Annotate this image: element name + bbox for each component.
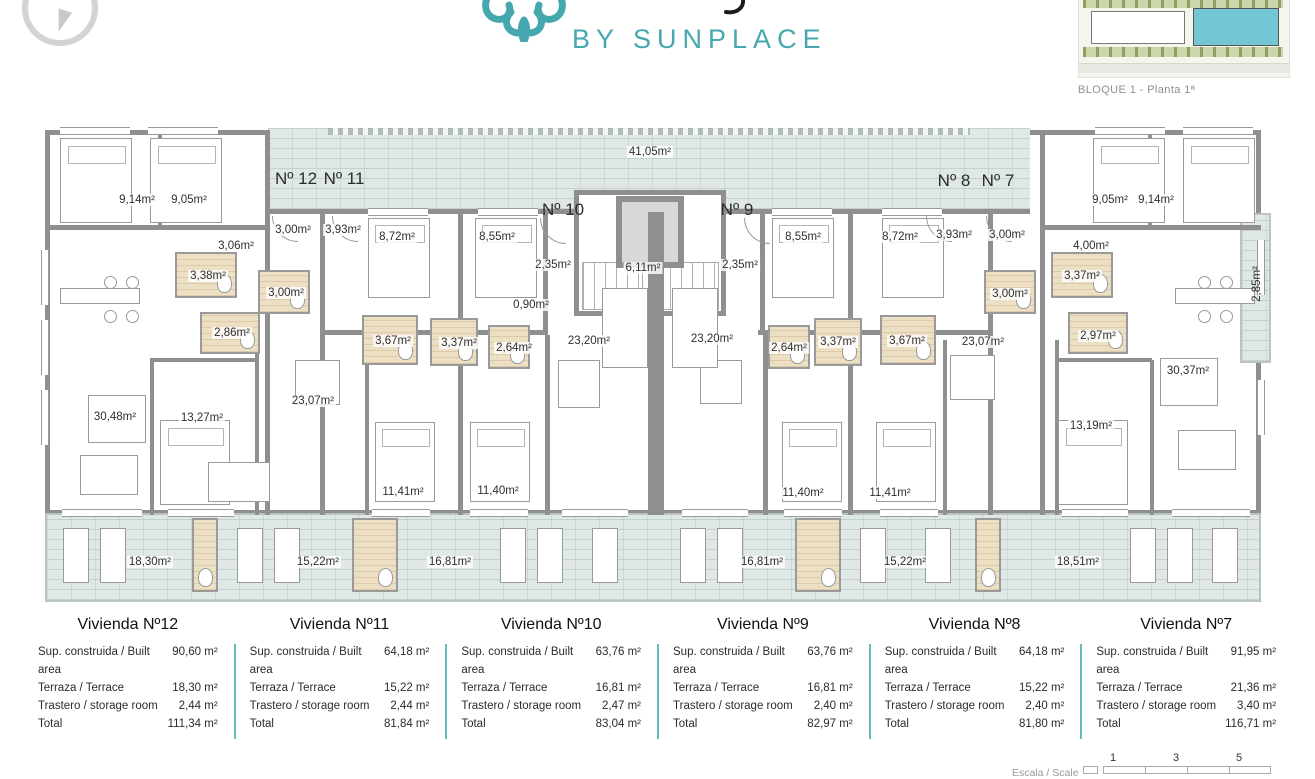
- room-area-label: 11,40m²: [475, 485, 520, 497]
- legend-row: Total81,84 m²: [250, 715, 430, 733]
- legend-row: Total82,97 m²: [673, 715, 853, 733]
- legend-row-label: Sup. construida / Built area: [461, 643, 595, 679]
- legend-row-label: Trastero / storage room: [1096, 697, 1216, 715]
- legend-row: Trastero / storage room2,47 m²: [461, 697, 641, 715]
- room-area-label: 9,14m²: [117, 194, 157, 206]
- room-area-label: 23,20m²: [566, 335, 612, 347]
- legend-row-value: 81,84 m²: [384, 715, 429, 733]
- room-area-label: 30,48m²: [92, 411, 138, 423]
- window: [1257, 380, 1265, 435]
- stool: [1220, 276, 1233, 289]
- legend-row-value: 3,40 m²: [1237, 697, 1276, 715]
- legend-row: Terraza / Terrace15,22 m²: [885, 679, 1065, 697]
- bed: [475, 218, 537, 298]
- window: [368, 208, 428, 216]
- room-area-label: 11,41m²: [867, 487, 912, 499]
- room-area-label: 15,22m²: [295, 556, 341, 568]
- interior-wall: [943, 340, 947, 515]
- sun-lounger: [1167, 528, 1193, 583]
- room-area-label: 2,64m²: [494, 342, 534, 354]
- interior-wall: [648, 212, 664, 515]
- stool: [104, 310, 117, 323]
- window: [1183, 127, 1253, 135]
- room-area-label: 16,81m²: [427, 556, 473, 568]
- room-area-label: 3,00m²: [987, 229, 1027, 241]
- legend-row-value: 15,22 m²: [384, 679, 429, 697]
- legend-row-label: Total: [38, 715, 62, 733]
- stool: [1198, 276, 1211, 289]
- legend-unit-title: Vivienda Nº10: [461, 616, 641, 634]
- storage-closet: [975, 518, 1001, 592]
- room-area-label: 3,00m²: [266, 287, 306, 299]
- storage-closet: [352, 518, 398, 592]
- room-area-label: 13,19m²: [1068, 420, 1114, 432]
- legend-row-label: Trastero / storage room: [673, 697, 793, 715]
- legend-row: Trastero / storage room3,40 m²: [1096, 697, 1276, 715]
- legend-column: Vivienda Nº8Sup. construida / Built area…: [869, 616, 1081, 733]
- interior-wall: [1055, 358, 1152, 362]
- interior-wall: [545, 335, 550, 515]
- legend-row-value: 15,22 m²: [1019, 679, 1064, 697]
- legend-column: Vivienda Nº10Sup. construida / Built are…: [445, 616, 657, 733]
- legend-row: Trastero / storage room2,40 m²: [885, 697, 1065, 715]
- furniture: [672, 288, 718, 368]
- interior-wall: [45, 225, 265, 230]
- furniture: [602, 288, 648, 368]
- room-area-label: 13,27m²: [179, 412, 225, 424]
- room-area-label: 2,35m²: [720, 259, 760, 271]
- furniture: [1178, 430, 1236, 470]
- legend-row-label: Sup. construida / Built area: [673, 643, 807, 679]
- unit-number-label: Nº 11: [324, 169, 365, 189]
- furniture: [80, 455, 138, 495]
- room-area-label: 23,07m²: [960, 336, 1006, 348]
- room-area-label: 2,97m²: [1078, 330, 1118, 342]
- room-area-label: 2,64m²: [769, 342, 809, 354]
- scale-label: Escala / Scale: [1012, 767, 1079, 779]
- stool: [104, 276, 117, 289]
- legend-row-label: Total: [461, 715, 485, 733]
- room-area-label: 3,38m²: [188, 270, 228, 282]
- room-area-label: 3,67m²: [887, 335, 927, 347]
- legend-unit-title: Vivienda Nº9: [673, 616, 853, 634]
- interior-wall: [1040, 130, 1045, 515]
- legend-row: Terraza / Terrace16,81 m²: [461, 679, 641, 697]
- window: [168, 509, 234, 517]
- window: [60, 127, 130, 135]
- legend-column: Vivienda Nº11Sup. construida / Built are…: [234, 616, 446, 733]
- legend-row-label: Trastero / storage room: [885, 697, 1005, 715]
- furniture: [1175, 288, 1255, 304]
- window: [562, 509, 628, 517]
- window: [784, 509, 842, 517]
- window: [470, 509, 528, 517]
- legend-row-label: Terraza / Terrace: [1096, 679, 1182, 697]
- bed: [1058, 420, 1128, 505]
- pergola-strip: [328, 128, 970, 135]
- unit-number-label: Nº 7: [982, 171, 1015, 191]
- room-area-label: 3,93m²: [323, 224, 363, 236]
- legend-row-label: Terraza / Terrace: [250, 679, 336, 697]
- room-area-label: 8,72m²: [377, 231, 417, 243]
- bed: [1093, 138, 1165, 223]
- room-area-label: 8,55m²: [477, 231, 517, 243]
- window: [880, 509, 938, 517]
- window: [41, 390, 49, 445]
- legend-row: Trastero / storage room2,44 m²: [38, 697, 218, 715]
- legend-row: Sup. construida / Built area90,60 m²: [38, 643, 218, 679]
- stool: [1220, 310, 1233, 323]
- room-area-label: 15,22m²: [882, 556, 928, 568]
- sun-lounger: [925, 528, 951, 583]
- room-area-label: 2,86m²: [212, 327, 252, 339]
- sun-lounger: [237, 528, 263, 583]
- room-area-label: 41,05m²: [627, 146, 673, 158]
- room-area-label: 9,05m²: [169, 194, 209, 206]
- sun-lounger: [100, 528, 126, 583]
- window: [1172, 509, 1250, 517]
- legend-row-label: Terraza / Terrace: [673, 679, 759, 697]
- legend-row-label: Trastero / storage room: [38, 697, 158, 715]
- legend-row-value: 16,81 m²: [596, 679, 641, 697]
- interior-wall: [150, 358, 257, 362]
- bed: [150, 138, 222, 223]
- legend-unit-title: Vivienda Nº8: [885, 616, 1065, 634]
- scale-bar-stub: [1083, 766, 1098, 774]
- interior-wall: [265, 130, 270, 515]
- legend-row: Terraza / Terrace15,22 m²: [250, 679, 430, 697]
- room-area-label: 11,41m²: [380, 486, 425, 498]
- furniture: [208, 462, 270, 502]
- room-area-label: 3,06m²: [216, 240, 256, 252]
- legend-row-value: 111,34 m²: [168, 715, 218, 733]
- interior-wall: [150, 360, 154, 515]
- legend-unit-title: Vivienda Nº7: [1096, 616, 1276, 634]
- room-area-label: 18,51m²: [1055, 556, 1101, 568]
- legend-row-value: 2,40 m²: [1025, 697, 1064, 715]
- room-area-label: 18,30m²: [127, 556, 173, 568]
- unit-number-label: Nº 10: [542, 200, 584, 220]
- room-area-label-vertical: 2,85m²: [1251, 266, 1263, 302]
- legend-column: Vivienda Nº12Sup. construida / Built are…: [22, 616, 234, 733]
- room-area-label: 3,93m²: [934, 229, 974, 241]
- legend-row: Sup. construida / Built area63,76 m²: [461, 643, 641, 679]
- stool: [1198, 310, 1211, 323]
- bed: [772, 218, 834, 298]
- sun-lounger: [63, 528, 89, 583]
- legend-row-label: Terraza / Terrace: [461, 679, 547, 697]
- room-area-label: 8,72m²: [880, 231, 920, 243]
- room-area-label: 23,07m²: [290, 395, 336, 407]
- scale-bar: [1103, 766, 1271, 774]
- window: [1095, 127, 1165, 135]
- sun-lounger: [537, 528, 563, 583]
- scale-tick-number: 5: [1236, 752, 1242, 764]
- legend-row: Terraza / Terrace16,81 m²: [673, 679, 853, 697]
- legend-row-value: 90,60 m²: [172, 643, 217, 679]
- interior-wall: [1045, 225, 1261, 230]
- room-area-label: 8,55m²: [783, 231, 823, 243]
- room-area-label: 11,40m²: [780, 487, 825, 499]
- window: [772, 208, 832, 216]
- legend-row-value: 18,30 m²: [172, 679, 217, 697]
- stool: [126, 310, 139, 323]
- sun-lounger: [500, 528, 526, 583]
- room-area-label: 3,00m²: [273, 224, 313, 236]
- bed: [1183, 138, 1255, 223]
- unit-number-label: Nº 9: [721, 200, 754, 220]
- window: [62, 509, 142, 517]
- legend-row-label: Sup. construida / Built area: [1096, 643, 1230, 679]
- legend-row-label: Total: [1096, 715, 1120, 733]
- furniture: [558, 360, 600, 408]
- unit-number-label: Nº 8: [938, 171, 971, 191]
- legend-row-label: Sup. construida / Built area: [38, 643, 172, 679]
- room-area-label: 9,14m²: [1136, 194, 1176, 206]
- room-area-label: 23,20m²: [689, 333, 735, 345]
- room-area-label: 3,37m²: [1062, 270, 1102, 282]
- legend-row: Total116,71 m²: [1096, 715, 1276, 733]
- room-area-label: 9,05m²: [1090, 194, 1130, 206]
- legend-row-label: Sup. construida / Built area: [250, 643, 384, 679]
- window: [148, 127, 218, 135]
- apartment-legend-table: Vivienda Nº12Sup. construida / Built are…: [22, 616, 1292, 733]
- legend-row: Sup. construida / Built area63,76 m²: [673, 643, 853, 679]
- sun-lounger: [1212, 528, 1238, 583]
- legend-row: Terraza / Terrace18,30 m²: [38, 679, 218, 697]
- room-area-label: 3,37m²: [818, 336, 858, 348]
- furniture: [950, 355, 995, 400]
- legend-row: Total83,04 m²: [461, 715, 641, 733]
- interior-wall: [365, 340, 369, 515]
- legend-row: Total81,80 m²: [885, 715, 1065, 733]
- legend-row-label: Total: [885, 715, 909, 733]
- legend-row-value: 83,04 m²: [596, 715, 641, 733]
- window: [682, 509, 748, 517]
- legend-row-label: Trastero / storage room: [461, 697, 581, 715]
- room-area-label: 6,11m²: [624, 262, 663, 274]
- legend-row-value: 91,95 m²: [1231, 643, 1276, 679]
- legend-row-value: 2,44 m²: [179, 697, 218, 715]
- storage-closet: [192, 518, 218, 592]
- bed: [60, 138, 132, 223]
- storage-closet: [795, 518, 841, 592]
- window: [41, 320, 49, 375]
- room-area-label: 4,00m²: [1071, 240, 1111, 252]
- room-area-label: 3,37m²: [439, 337, 479, 349]
- legend-row-value: 16,81 m²: [807, 679, 852, 697]
- legend-column: Vivienda Nº9Sup. construida / Built area…: [657, 616, 869, 733]
- room-area-label: 3,00m²: [990, 288, 1030, 300]
- sun-lounger: [592, 528, 618, 583]
- interior-wall: [1150, 360, 1154, 515]
- window: [882, 208, 942, 216]
- legend-row-label: Trastero / storage room: [250, 697, 370, 715]
- legend-unit-title: Vivienda Nº11: [250, 616, 430, 634]
- window: [41, 250, 49, 305]
- bed: [368, 218, 430, 298]
- room-area-label: 16,81m²: [739, 556, 785, 568]
- legend-row-value: 82,97 m²: [807, 715, 852, 733]
- legend-row-label: Total: [250, 715, 274, 733]
- scale-tick-number: 1: [1110, 752, 1116, 764]
- legend-row: Total111,34 m²: [38, 715, 218, 733]
- window: [372, 509, 430, 517]
- room-area-label: 30,37m²: [1165, 365, 1211, 377]
- legend-unit-title: Vivienda Nº12: [38, 616, 218, 634]
- unit-number-label: Nº 12: [275, 169, 317, 189]
- legend-row-value: 21,36 m²: [1231, 679, 1276, 697]
- room-area-label: 2,35m²: [533, 259, 573, 271]
- legend-row: Terraza / Terrace21,36 m²: [1096, 679, 1276, 697]
- legend-row-label: Total: [673, 715, 697, 733]
- window: [478, 208, 538, 216]
- legend-column: Vivienda Nº7Sup. construida / Built area…: [1080, 616, 1292, 733]
- legend-row: Sup. construida / Built area91,95 m²: [1096, 643, 1276, 679]
- sun-lounger: [1130, 528, 1156, 583]
- legend-row-value: 2,40 m²: [814, 697, 853, 715]
- window: [1062, 509, 1128, 517]
- legend-row-label: Terraza / Terrace: [38, 679, 124, 697]
- legend-row-value: 116,71 m²: [1225, 715, 1276, 733]
- legend-row-label: Sup. construida / Built area: [885, 643, 1019, 679]
- legend-row-value: 63,76 m²: [807, 643, 852, 679]
- room-area-label: 0,90m²: [511, 299, 551, 311]
- legend-row-value: 64,18 m²: [384, 643, 429, 679]
- stool: [126, 276, 139, 289]
- legend-row-value: 2,47 m²: [602, 697, 641, 715]
- legend-row-value: 81,80 m²: [1019, 715, 1064, 733]
- sun-lounger: [680, 528, 706, 583]
- legend-row-value: 63,76 m²: [596, 643, 641, 679]
- legend-row: Sup. construida / Built area64,18 m²: [885, 643, 1065, 679]
- legend-row-value: 2,44 m²: [390, 697, 429, 715]
- legend-row-value: 64,18 m²: [1019, 643, 1064, 679]
- room-area-label: 3,67m²: [373, 335, 413, 347]
- legend-row: Trastero / storage room2,40 m²: [673, 697, 853, 715]
- legend-row: Trastero / storage room2,44 m²: [250, 697, 430, 715]
- legend-row: Sup. construida / Built area64,18 m²: [250, 643, 430, 679]
- furniture: [60, 288, 140, 304]
- scale-tick-number: 3: [1173, 752, 1179, 764]
- legend-row-label: Terraza / Terrace: [885, 679, 971, 697]
